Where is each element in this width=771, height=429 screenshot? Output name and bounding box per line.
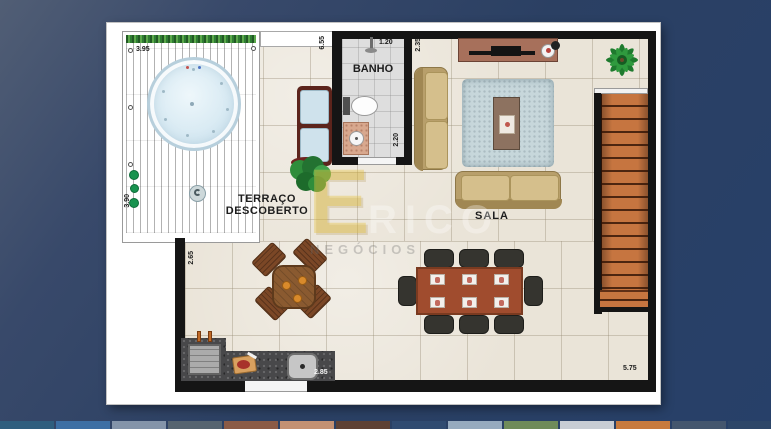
spa-jet <box>220 82 223 85</box>
meat-icon <box>237 360 250 369</box>
leaf <box>308 176 326 192</box>
sink-drain <box>355 137 358 140</box>
room-label-bathroom: BANHO <box>342 63 404 75</box>
dimension-marker <box>128 105 133 110</box>
dining-chair <box>524 276 543 306</box>
deck-plant <box>129 198 139 208</box>
sofa-back <box>415 68 423 171</box>
hot-tub <box>147 57 241 151</box>
gallery-thumbnail[interactable] <box>0 421 54 429</box>
dimension-terrace-left: 2.65 <box>188 251 195 265</box>
dimension-terrace-wall: 6.55 <box>319 36 326 50</box>
sofa-horizontal <box>455 171 561 208</box>
gallery-thumbnail[interactable] <box>336 421 390 429</box>
deck-plant <box>130 184 139 193</box>
gallery-thumbnail[interactable] <box>672 421 726 429</box>
gallery-thumbnail[interactable] <box>168 421 222 429</box>
dining-table <box>416 267 523 315</box>
tv-icon <box>491 46 521 56</box>
stair-steps <box>601 94 648 290</box>
tv-sideboard <box>458 38 558 62</box>
decor-dot <box>505 122 510 127</box>
dining-chair <box>424 249 454 268</box>
gallery-thumbnail[interactable] <box>56 421 110 429</box>
spa-jet <box>192 68 195 71</box>
spa-jet <box>164 118 167 121</box>
decor-dot-red <box>546 48 551 53</box>
corner-plant <box>600 38 644 82</box>
dimension-bath-side: 2.20 <box>393 133 400 147</box>
gallery-thumbnail[interactable] <box>448 421 502 429</box>
spa-jet <box>212 130 215 133</box>
dimension-bath-top: 1.20 <box>379 39 393 46</box>
gallery-thumbnail[interactable] <box>560 421 614 429</box>
dining-chair <box>424 315 454 334</box>
spa-jet <box>186 134 189 137</box>
dining-chair <box>459 315 489 334</box>
dimension-marker <box>128 162 133 167</box>
wall-divider <box>332 31 342 165</box>
toilet-cistern <box>343 97 350 115</box>
dimension-living-bottom: 5.75 <box>623 365 637 372</box>
toilet <box>351 96 378 116</box>
decor-disc-dark <box>551 41 560 50</box>
shower-head-icon <box>365 48 377 53</box>
spa-control-red <box>186 66 189 69</box>
dimension-marker <box>128 48 133 53</box>
grill-skewer <box>197 331 201 342</box>
coffee-table <box>493 97 520 150</box>
dining-chair <box>398 276 417 306</box>
wall-right <box>648 31 656 392</box>
bathroom-door-opening <box>358 157 396 165</box>
gallery-thumbnail[interactable] <box>112 421 166 429</box>
wall-bathroom-right <box>404 31 412 165</box>
window-opening <box>245 380 307 392</box>
grill-icon <box>188 344 221 375</box>
stair-stringer <box>594 93 601 291</box>
terrace-table <box>272 265 316 309</box>
dimension-deck-top: 3.95 <box>136 46 150 53</box>
gallery-thumbnail[interactable] <box>504 421 558 429</box>
dining-chair <box>459 249 489 268</box>
dining-chair <box>494 315 524 334</box>
spa-jet <box>162 90 165 93</box>
sofa-vertical <box>414 67 448 170</box>
terrace-plant <box>288 156 334 200</box>
spa-control-blue <box>198 66 201 69</box>
staircase <box>594 88 648 312</box>
counter-sink-drain <box>300 364 305 369</box>
room-label-terrace-line2: DESCOBERTO <box>207 205 327 217</box>
hedge-planter <box>126 35 256 43</box>
gallery-thumbnail[interactable] <box>280 421 334 429</box>
gallery-thumbnail[interactable] <box>616 421 670 429</box>
deck-plant <box>129 170 139 180</box>
dimension-living-top: 2.35 <box>415 38 422 52</box>
floor-drain-mark <box>194 189 201 196</box>
spa-drain <box>190 102 194 106</box>
stair-turn <box>600 290 648 307</box>
gallery-thumbnail[interactable] <box>392 421 446 429</box>
spa-jet <box>226 108 229 111</box>
gallery-thumbnail[interactable] <box>728 421 771 429</box>
thumbnail-strip <box>0 421 771 429</box>
room-label-living: SALA <box>457 210 527 222</box>
dining-chair <box>494 249 524 268</box>
gallery-thumbnail[interactable] <box>224 421 278 429</box>
stair-edge <box>600 307 648 312</box>
sun-lounger <box>297 86 332 166</box>
dimension-marker <box>251 46 256 51</box>
floorplan-image[interactable]: 3.95 3.90 BANHO 1.20 2.20 6.55 2.35 2.65… <box>107 23 660 404</box>
dimension-counter: 2.85 <box>314 369 328 376</box>
viewer-background: { "gallery": { "thumbnails": ["#2f5e7e",… <box>0 0 771 429</box>
grill-skewer <box>208 331 212 342</box>
